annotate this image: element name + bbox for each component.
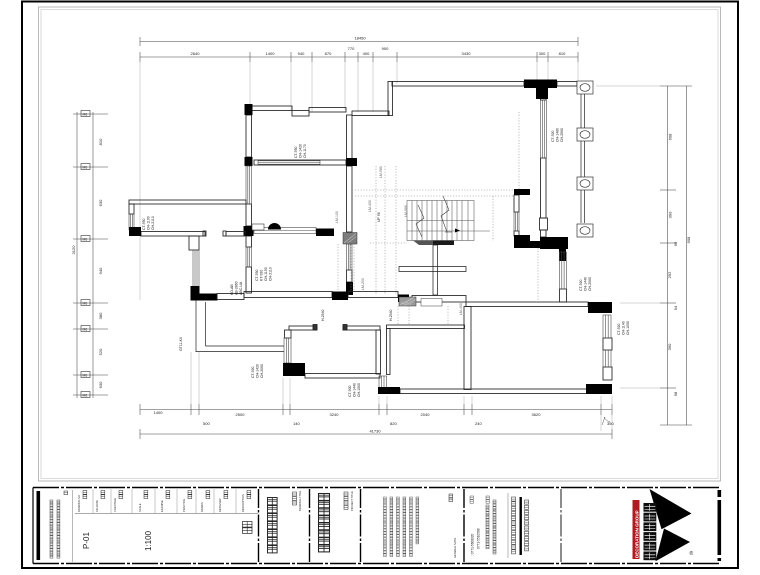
svg-text:CT-950: CT-950 [294,146,298,158]
svg-text:94: 94 [673,305,678,310]
svg-text:SIG DATE: SIG DATE [95,500,99,512]
svg-text:908: 908 [686,236,691,243]
svg-text:41730: 41730 [369,429,381,434]
svg-text:608: 608 [668,133,673,140]
svg-text:CH-1500: CH-1500 [357,383,361,397]
svg-text:DESIGNER: DESIGNER [218,498,222,512]
svg-text:KT-920: KT-920 [260,270,264,281]
svg-text:CT-920: CT-920 [551,130,555,142]
svg-text:520: 520 [98,348,103,355]
svg-text:810: 810 [98,138,103,145]
svg-text:®: ® [690,550,694,557]
svg-text:CT-920: CT-920 [251,366,255,378]
svg-text:870: 870 [325,51,332,56]
svg-text:CH-1050: CH-1050 [626,321,630,335]
svg-text:CT-920: CT-920 [617,323,621,335]
svg-text:292: 292 [667,271,672,278]
svg-text:DRAWING TITLE: DRAWING TITLE [298,491,302,511]
svg-text:940: 940 [298,51,305,56]
svg-text:LM-400: LM-400 [368,200,372,212]
svg-text:CH-1190: CH-1190 [264,267,268,281]
svg-text:2500: 2500 [236,412,246,417]
svg-text:CH-2060: CH-2060 [260,364,264,378]
svg-text:CH-1420: CH-1420 [256,364,260,378]
svg-text:630: 630 [98,199,103,206]
svg-text:CH-1440: CH-1440 [353,383,357,397]
svg-text:1400: 1400 [266,51,276,56]
svg-text:2040: 2040 [421,412,431,417]
svg-text:H-2540: H-2540 [389,309,393,321]
svg-text:CH-2110: CH-2110 [151,216,155,230]
svg-text:LM-980: LM-980 [379,166,383,178]
svg-text:CH-1440: CH-1440 [584,277,588,291]
svg-text:770: 770 [348,46,355,51]
svg-text:CH-1190: CH-1190 [147,216,151,230]
svg-text:CH-2560: CH-2560 [560,128,564,142]
svg-text:810: 810 [559,51,566,56]
svg-text:CH-2110: CH-2110 [269,267,273,281]
svg-text:P-01: P-01 [82,532,91,549]
svg-text:LM-980: LM-980 [404,205,408,217]
svg-text:CT-950: CT-950 [255,269,259,281]
svg-text:ABC-UA: ABC-UA [239,281,243,295]
svg-text:3120: 3120 [71,245,76,255]
svg-text:DECORATION GROUP: DECORATION GROUP [635,510,640,558]
svg-text:240: 240 [475,421,482,426]
svg-text:CH-1140: CH-1140 [622,321,626,335]
svg-text:CH-1420: CH-1420 [299,144,303,158]
svg-text:390: 390 [668,211,673,218]
svg-text:M6: M6 [83,328,88,332]
svg-text:390: 390 [667,343,672,350]
svg-text:DESCRIPTION: DESCRIPTION [241,494,245,512]
svg-text:zxw: zxw [399,301,413,308]
svg-text:90: 90 [673,241,678,246]
svg-text:AB-2860: AB-2860 [235,281,239,295]
svg-text:CH-2060: CH-2060 [588,277,592,291]
svg-text:M6: M6 [83,238,88,242]
svg-text:M6: M6 [83,113,88,117]
svg-text:2640: 2640 [191,51,201,56]
svg-text:380: 380 [98,312,103,319]
svg-text:KD-AB: KD-AB [230,284,234,295]
svg-text:CH-1170: CH-1170 [303,144,307,158]
svg-text:CLIENTELE: CLIENTELE [113,498,117,512]
svg-text:PRACTICE: PRACTICE [182,499,186,512]
svg-text:CT-950: CT-950 [142,218,146,230]
svg-text:M6: M6 [83,394,88,398]
svg-text:H-2540: H-2540 [321,309,325,321]
svg-text:M6: M6 [83,166,88,170]
svg-text:PROJECT TITLE: PROJECT TITLE [350,491,354,511]
svg-text:LM-100: LM-100 [335,211,339,223]
svg-text:CT-920: CT-920 [579,279,583,291]
svg-text:350: 350 [607,421,614,426]
svg-text:140: 140 [293,421,300,426]
svg-text:LM-400: LM-400 [459,303,463,315]
svg-text:LM-200: LM-200 [361,278,365,290]
svg-text:DRAWN: DRAWN [200,502,204,512]
svg-text:940: 940 [98,267,103,274]
svg-text:300: 300 [539,51,546,56]
svg-text:18450: 18450 [354,36,366,41]
svg-text:M6: M6 [83,374,88,378]
svg-text:820: 820 [390,421,397,426]
svg-text:900: 900 [382,46,389,51]
svg-text:CH-1480: CH-1480 [556,128,560,142]
svg-text:DRAWING NO: DRAWING NO [77,495,81,512]
svg-text:GT11-K0: GT11-K0 [179,337,183,351]
svg-text:EXAMINE: EXAMINE [160,500,164,512]
svg-text:0771-5510588: 0771-5510588 [477,528,481,549]
svg-text:3430: 3430 [462,51,472,56]
svg-text:1400: 1400 [154,410,164,415]
svg-text:UP 96: UP 96 [377,212,381,222]
svg-text:: 0771-5608020: : 0771-5608020 [471,533,475,556]
svg-text:CT-900: CT-900 [348,385,352,397]
svg-text:1:100: 1:100 [144,530,153,551]
svg-text:GENERAL NOTE: GENERAL NOTE [453,538,457,558]
svg-text:400: 400 [363,51,370,56]
svg-text:3240: 3240 [330,412,340,417]
svg-text:500: 500 [203,421,210,426]
svg-text:630: 630 [98,381,103,388]
svg-text:98: 98 [673,391,678,396]
svg-text:SCALE: SCALE [138,503,142,512]
svg-text:M6: M6 [83,302,88,306]
svg-text:3620: 3620 [532,412,542,417]
